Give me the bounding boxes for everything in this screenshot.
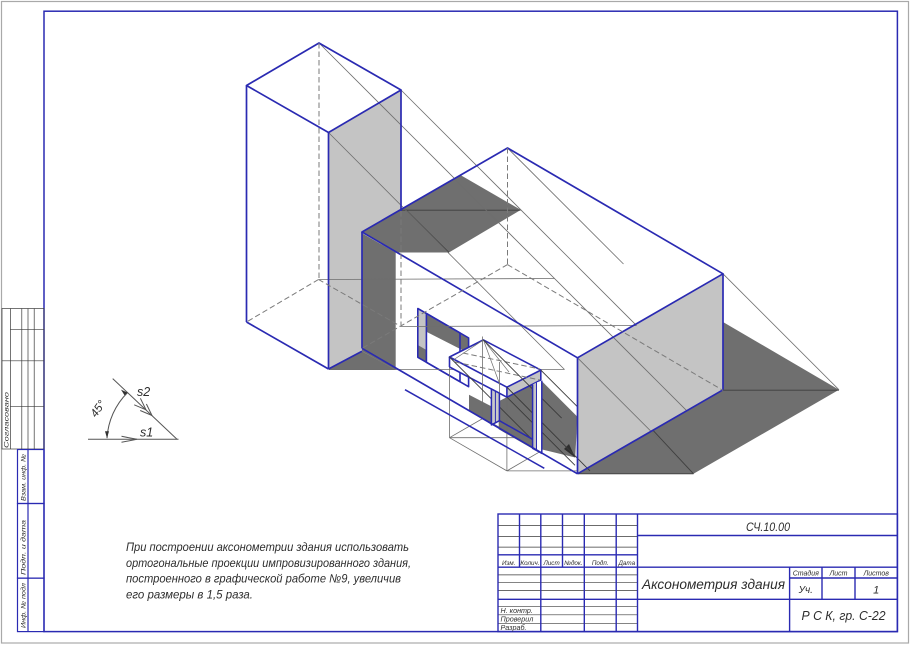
svg-text:№док.: №док. xyxy=(564,559,583,567)
svg-text:Колич.: Колич. xyxy=(520,560,539,567)
svg-text:1: 1 xyxy=(873,585,879,597)
svg-text:s1: s1 xyxy=(140,426,153,440)
svg-text:СЧ.10.00: СЧ.10.00 xyxy=(746,520,790,534)
svg-text:s2: s2 xyxy=(137,385,150,399)
svg-text:его размеры в 1,5 раза.: его размеры в 1,5 раза. xyxy=(126,587,253,601)
svg-text:Изм.: Изм. xyxy=(502,560,515,567)
svg-text:Лист: Лист xyxy=(828,571,847,578)
svg-text:Подп.: Подп. xyxy=(592,559,609,567)
svg-text:Р С К, гр. С-22: Р С К, гр. С-22 xyxy=(802,609,886,623)
svg-text:Аксонометрия здания: Аксонометрия здания xyxy=(641,577,785,592)
svg-text:Стадия: Стадия xyxy=(793,570,819,578)
svg-text:Уч.: Уч. xyxy=(798,585,813,596)
svg-text:Подп. и дата: Подп. и дата xyxy=(19,520,27,575)
svg-text:Листов: Листов xyxy=(862,571,889,578)
svg-text:Дата: Дата xyxy=(617,560,635,567)
svg-text:Инф. № подл: Инф. № подл xyxy=(19,583,27,628)
svg-text:Лист: Лист xyxy=(542,560,559,567)
svg-text:Разраб.: Разраб. xyxy=(501,623,527,632)
svg-text:построенного в графической раб: построенного в графической работе №9, ув… xyxy=(126,572,401,586)
svg-text:При построении аксонометрии зд: При построении аксонометрии здания испол… xyxy=(126,540,409,554)
svg-text:Взам. инф. №: Взам. инф. № xyxy=(20,454,27,501)
svg-text:Согласовано: Согласовано xyxy=(3,392,10,448)
svg-text:ортогональные проекции импрови: ортогональные проекции импровизированног… xyxy=(126,556,411,570)
